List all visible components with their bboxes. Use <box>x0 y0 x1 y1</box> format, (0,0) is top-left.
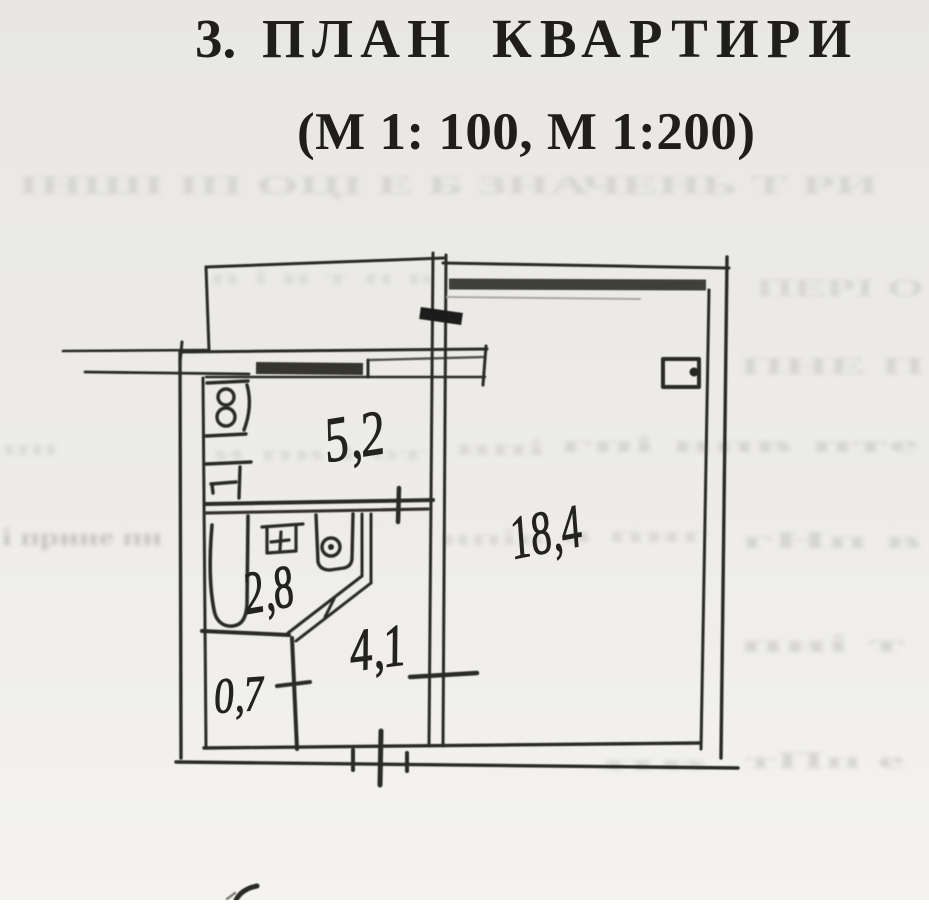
svg-text:3.: 3. <box>195 8 236 69</box>
svg-text:гНп в: гНп в <box>742 528 922 554</box>
svg-text:п і и т п в: п і и т п в <box>210 265 435 289</box>
svg-text:пв: пв <box>600 750 711 775</box>
svg-text:0,7: 0,7 <box>212 665 268 724</box>
svg-text:ІНШІ ІП ОЦІ Е Б ЗНАЧЕНЬ Т РИ: ІНШІ ІП ОЦІ Е Б ЗНАЧЕНЬ Т РИ <box>18 171 878 200</box>
svg-text:тПп е: тПп е <box>745 748 905 773</box>
svg-text:ПНЕ П: ПНЕ П <box>740 354 926 380</box>
svg-text:гпі нпв пте: гпі нпв пте <box>560 432 920 457</box>
svg-text:ПЕРІ О: ПЕРІ О <box>756 276 924 302</box>
svg-text:пн: пн <box>2 435 59 460</box>
svg-text:і прине пн: і прине пн <box>2 525 162 551</box>
svg-text:18,4: 18,4 <box>504 491 588 572</box>
svg-text:нпі: нпі <box>455 435 545 460</box>
svg-text:(М 1: 100, М 1:200): (М 1: 100, М 1:200) <box>297 103 755 161</box>
svg-text:5,2: 5,2 <box>319 397 389 476</box>
svg-text:КВАРТИРИ: КВАРТИРИ <box>492 8 851 69</box>
svg-text:4,1: 4,1 <box>346 613 410 685</box>
svg-text:пні т: пні т <box>740 632 906 658</box>
